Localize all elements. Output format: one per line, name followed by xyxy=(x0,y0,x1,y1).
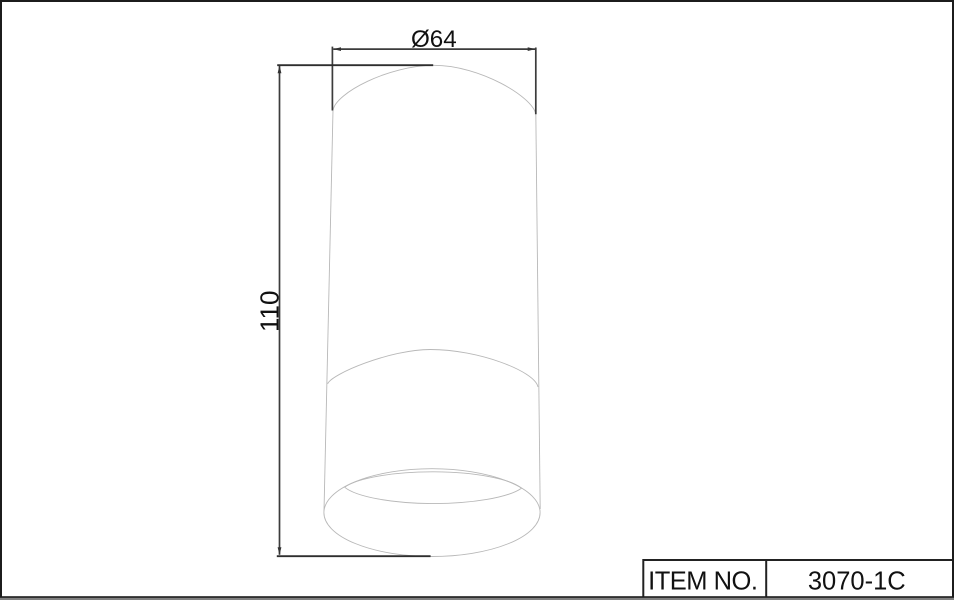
svg-text:3070-1C: 3070-1C xyxy=(808,567,906,595)
svg-text:ITEM NO.: ITEM NO. xyxy=(648,567,757,595)
svg-text:Ø64: Ø64 xyxy=(411,26,457,53)
svg-text:110: 110 xyxy=(255,291,285,332)
